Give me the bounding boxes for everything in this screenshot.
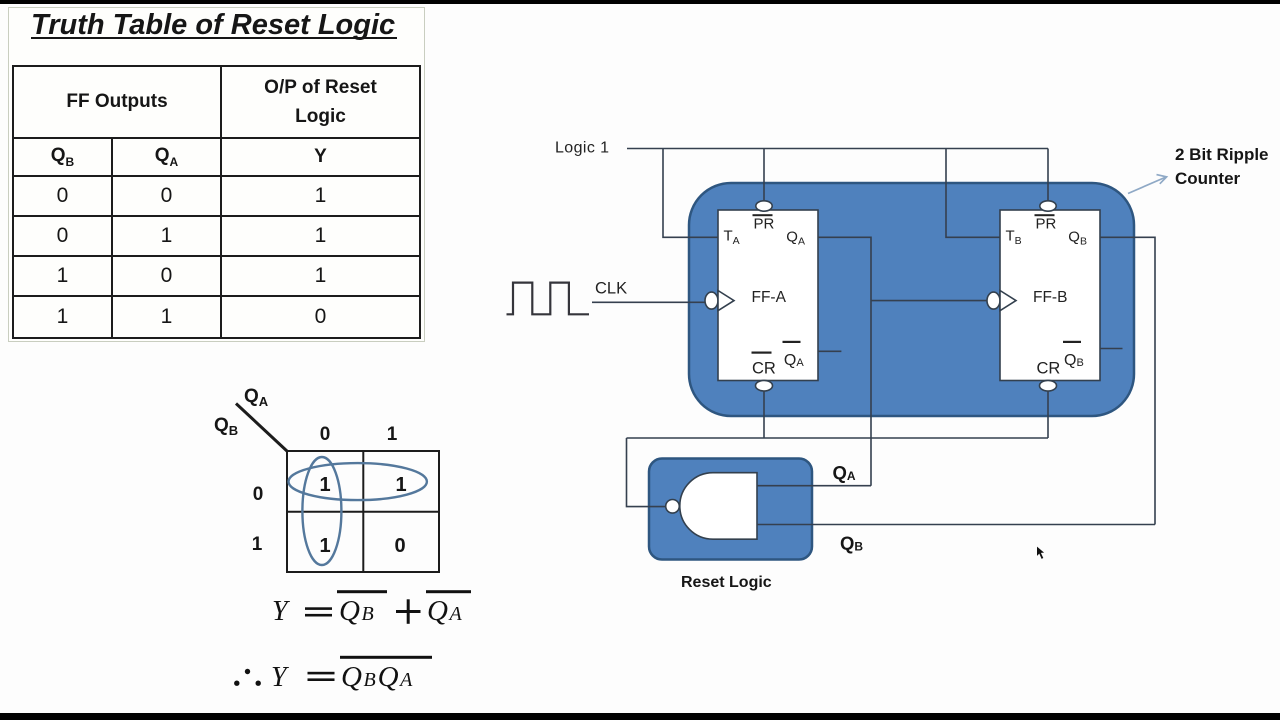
svg-text:QBQA: QBQA xyxy=(341,661,413,693)
svg-text:Counter: Counter xyxy=(1175,169,1241,188)
svg-text:0: 0 xyxy=(394,535,405,557)
svg-text:PR: PR xyxy=(754,216,775,233)
svg-text:CR: CR xyxy=(752,360,776,378)
svg-text:Reset Logic: Reset Logic xyxy=(681,574,772,591)
svg-text:0: 0 xyxy=(253,484,264,505)
svg-text:2 Bit Ripple: 2 Bit Ripple xyxy=(1175,145,1269,164)
svg-text:Y: Y xyxy=(272,596,291,627)
svg-text:QA: QA xyxy=(427,595,462,627)
svg-text:QA: QA xyxy=(244,386,269,409)
svg-text:1: 1 xyxy=(387,424,398,445)
svg-text:PR: PR xyxy=(1036,216,1057,233)
svg-text:QB: QB xyxy=(339,595,374,627)
svg-text:1: 1 xyxy=(395,474,406,496)
svg-text:QA: QA xyxy=(833,462,856,483)
svg-text:QB: QB xyxy=(214,415,238,438)
svg-text:Logic 1: Logic 1 xyxy=(555,140,609,157)
svg-text:FF-B: FF-B xyxy=(1033,289,1067,306)
svg-text:0: 0 xyxy=(320,424,331,445)
svg-text:FF-A: FF-A xyxy=(752,289,787,306)
svg-text:CR: CR xyxy=(1037,360,1061,378)
svg-text:1: 1 xyxy=(319,535,330,557)
svg-text:1: 1 xyxy=(319,474,330,496)
svg-text:CLK: CLK xyxy=(595,280,627,298)
svg-text:1: 1 xyxy=(252,534,263,555)
svg-text:QB: QB xyxy=(840,533,863,554)
svg-text:Y: Y xyxy=(271,662,290,693)
